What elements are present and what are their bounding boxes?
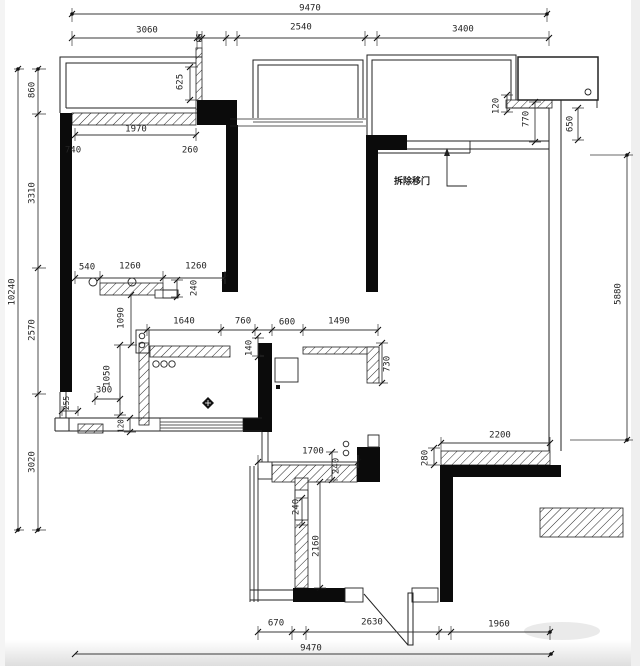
cabinet-symbol [275, 358, 298, 382]
dimension-end-dots [16, 12, 629, 656]
walls-thin [55, 55, 598, 602]
leader-line [444, 148, 467, 186]
stove-burner-icon [169, 361, 175, 367]
dot-symbol [276, 385, 280, 389]
floor-plan-canvas: 9470306090254034008603310257030201024012… [0, 0, 640, 666]
pipe-symbol [343, 450, 349, 456]
door-swing [364, 593, 413, 645]
fixtures [89, 278, 349, 456]
stove-burner-icon [153, 361, 159, 367]
demolish-door-label: 拆除移门 [394, 177, 446, 186]
walls-hatched [72, 48, 623, 588]
pipe-symbol [89, 278, 97, 286]
floor-plan-drawing [0, 0, 640, 666]
pipe-symbol [343, 441, 349, 447]
stove-burner-icon [161, 361, 167, 367]
